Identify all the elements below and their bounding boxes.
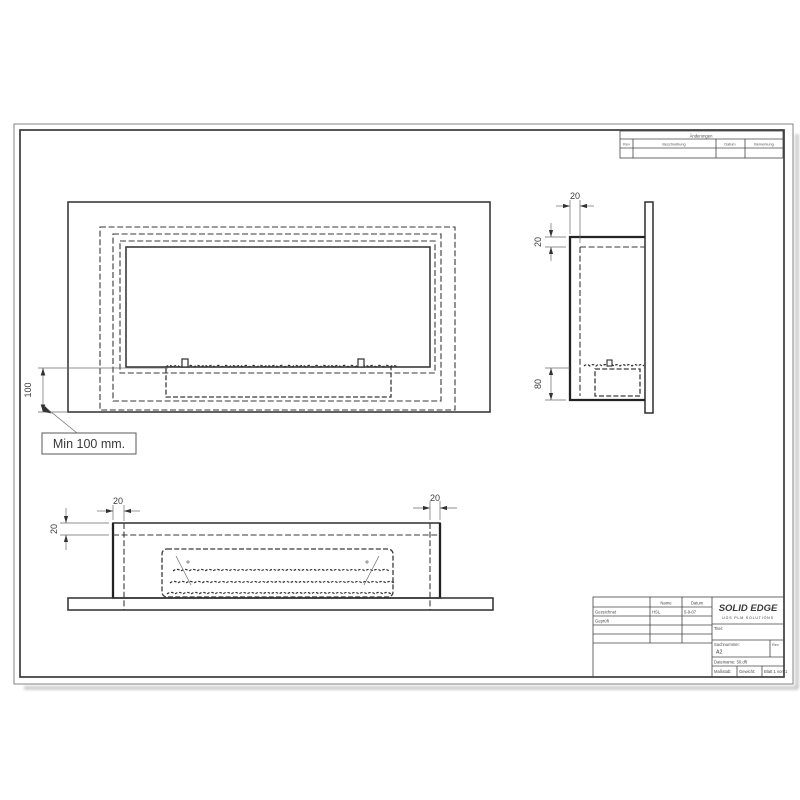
sheet-border	[14, 124, 799, 690]
dim-bottom-left-v-label: 20	[49, 524, 59, 534]
dim-bottom-left-h-label: 20	[113, 496, 123, 506]
sheet-shadow-right	[795, 134, 799, 688]
drawing-page: Änderungen Rev Beschreibung Datum Bemerk…	[0, 0, 800, 800]
front-tab-right	[358, 359, 364, 367]
sheet-shadow-bottom	[24, 686, 798, 690]
titleblock-row-checked-label: Geprüft	[595, 619, 610, 624]
solid-edge-logo: SOLID EDGE	[719, 603, 778, 614]
drawing-canvas: Änderungen Rev Beschreibung Datum Bemerk…	[0, 0, 800, 800]
titleblock-row-drawn-name: HSL	[652, 610, 661, 615]
dim-side-left-bottom-label: 80	[533, 379, 543, 389]
titleblock-filename: Dateiname: 50.dft	[714, 660, 748, 665]
dim-side-top-label: 20	[570, 191, 580, 201]
dim-front-height-label: 100	[23, 382, 33, 397]
titleblock-row-drawn-label: Gezeichnet	[595, 610, 617, 615]
dim-side-left-top-label: 20	[533, 237, 543, 247]
front-tab-left	[182, 359, 188, 367]
sheet-outer-frame	[14, 124, 793, 684]
revision-col-rev: Rev	[623, 143, 630, 147]
revision-table-title: Änderungen	[690, 134, 713, 139]
titleblock-date-header: Datum	[691, 601, 704, 606]
titleblock-docnumber-value: A2	[716, 650, 722, 656]
titleblock-rev-label: Rev	[772, 643, 779, 647]
titleblock-weight-label: Gewicht:	[739, 669, 755, 674]
revision-col-description: Beschreibung	[662, 143, 685, 147]
revision-col-remark: Bemerkung	[754, 143, 773, 147]
revision-col-date: Datum	[724, 143, 735, 147]
dim-bottom-right-h-label: 20	[430, 493, 440, 503]
titleblock-title-label: Titel:	[714, 626, 723, 631]
side-tab	[607, 360, 612, 366]
titleblock-sheet-label: Blatt 1 von 1	[764, 669, 788, 674]
titleblock-docnumber-label: Sachnummer:	[714, 642, 740, 647]
titleblock-name-header: Name	[660, 601, 672, 606]
solid-edge-logo-subtitle: UGS PLM SOLUTIONS	[722, 616, 774, 620]
titleblock-row-drawn-date: 5-9-07	[684, 610, 697, 615]
titleblock-scale-label: Maßstab:	[714, 669, 731, 674]
min-callout-label: Min 100 mm.	[53, 437, 125, 451]
